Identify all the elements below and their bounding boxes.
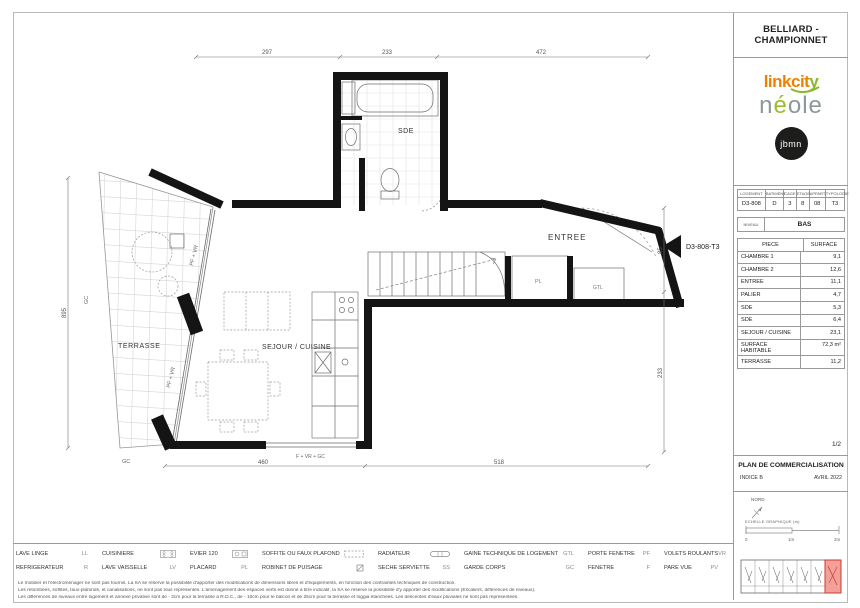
niveau-value: BAS	[765, 218, 844, 231]
legend-code: PV	[711, 565, 718, 571]
piece-name: CHAMBRE 2	[738, 264, 801, 276]
piece-name: CHAMBRE 1	[738, 252, 801, 264]
unit-col-etage: ETAGE	[796, 190, 809, 198]
disclaimer-line-3: Les différences de niveaux entre logemen…	[18, 595, 648, 602]
divider	[734, 455, 848, 456]
table-row: CHAMBRE 212,6	[738, 264, 844, 277]
unit-value-etage: 8	[796, 198, 809, 211]
unit-value-typologie: T3	[825, 198, 844, 211]
legend-code: R	[84, 565, 88, 571]
plan-sheet: { "header": { "project_title": "BELLIARD…	[0, 0, 860, 608]
neole-accent: é	[773, 92, 787, 119]
legend-item: RADIATEUR	[378, 547, 464, 561]
dim-right-1: 85	[658, 247, 664, 254]
legend-label: REFRIGERATEUR	[16, 565, 63, 571]
legend-label: SOFFITE OU FAUX PLAFOND	[262, 551, 340, 557]
piece-name: SEJOUR / CUISINE	[738, 327, 801, 339]
date: AVRIL 2022	[814, 475, 842, 481]
label-gc-left: GC	[84, 296, 90, 304]
legend-label: GAINE TECHNIQUE DE LOGEMENT	[464, 551, 558, 557]
dim-top-3: 472	[536, 50, 547, 56]
label-window-bottom: F + VR + GC	[296, 454, 325, 460]
label-gtl: GTL	[593, 285, 603, 291]
legend-item: FENETREF	[588, 561, 664, 575]
legend-label: EVIER 120	[190, 551, 218, 557]
tap-icon	[356, 564, 364, 572]
piece-name: ENTREE	[738, 277, 801, 289]
legend-label: FENETRE	[588, 565, 614, 571]
legend-label: LAVE LINGE	[16, 551, 48, 557]
room-label-sde: SDE	[398, 128, 414, 135]
legend-code: LL	[82, 551, 88, 557]
table-row: SDE6,4	[738, 315, 844, 328]
piece-surface: 12,6	[801, 264, 844, 276]
legend-label: RADIATEUR	[378, 551, 410, 557]
sink-icon	[232, 550, 248, 558]
bathroom-tiles	[341, 80, 444, 205]
table-row: SDE5,3	[738, 302, 844, 315]
divider	[13, 543, 733, 544]
table-row: PALIER4,7	[738, 289, 844, 302]
legend-code: PF	[643, 551, 650, 557]
terrace-tiles	[92, 166, 222, 452]
room-label-entree: ENTREE	[548, 233, 586, 242]
legend-code: F	[647, 565, 650, 571]
neole-logo: néole	[759, 94, 823, 118]
legend-item: PLACARDPL	[190, 561, 262, 575]
legend-item: LAVE LINGELL	[16, 547, 102, 561]
table-row: ENTREE11,1	[738, 277, 844, 290]
north-label: NORD	[751, 497, 765, 502]
piece-surface: 72,3 m²	[801, 340, 844, 356]
unit-value-batiment: D	[765, 198, 783, 211]
legend-label: PARE VUE	[664, 565, 692, 571]
jbmn-text: jbmn	[780, 139, 802, 149]
scale-label: ECHELLE GRAPHIQUE (m)	[745, 519, 800, 524]
scale-tick-1: 1m	[788, 537, 795, 542]
walls	[150, 72, 684, 449]
piece-name: TERRASSE	[738, 356, 801, 368]
disclaimer-text: Le mobilier et l'électroménager ne sont …	[18, 581, 648, 602]
unit-col-batiment: BATIMENT	[765, 190, 783, 198]
table-row: TERRASSE11,2	[738, 356, 844, 368]
disclaimer-line-1: Le mobilier et l'électroménager ne sont …	[18, 581, 648, 588]
linkcity-logo: linkcity	[764, 73, 819, 90]
dim-top-1: 297	[262, 50, 273, 56]
dim-left: 895	[62, 307, 68, 318]
legend-label: SECHE SERVIETTE	[378, 565, 430, 571]
surface-table-header: PIECE SURFACE	[738, 239, 844, 252]
unit-col-appart: APPART.	[809, 190, 825, 198]
legend-item: CUISINIERE	[102, 547, 190, 561]
unit-col-cage: CAGE	[784, 190, 797, 198]
piece-surface: 4,7	[801, 289, 844, 301]
room-label-sejour: SEJOUR / CUISINE	[262, 344, 331, 351]
legend-label: PORTE FENETRE	[588, 551, 635, 557]
legend-code: PL	[241, 565, 248, 571]
room-label-terrasse: TERRASSE	[118, 343, 161, 350]
unit-arrow-label: D3-808-T3	[686, 244, 720, 251]
page-number: 1/2	[832, 441, 841, 448]
legend-item: PARE VUEPV	[664, 561, 732, 575]
piece-surface: 23,1	[801, 327, 844, 339]
legend-label: PLACARD	[190, 565, 216, 571]
key-plan-thumbnail	[740, 555, 842, 599]
fixtures	[132, 80, 656, 438]
legend-code: SS	[443, 565, 450, 571]
scale-tick-0: 0	[745, 537, 748, 542]
piece-name: SDE	[738, 315, 801, 327]
legend-item: ROBINET DE PUISAGE	[262, 561, 378, 575]
logos-block: linkcity néole jbmn	[734, 57, 848, 186]
north-compass-icon	[749, 504, 765, 520]
unit-value-cage: 3	[784, 198, 797, 211]
legend-item: GARDE CORPSGC	[464, 561, 588, 575]
disclaimer-line-2: Les retombées, soffites, faux-plafonds, …	[18, 588, 648, 595]
legend-code: VR	[718, 551, 726, 557]
cooktop-icon	[160, 550, 176, 558]
linkcity-swoosh-icon	[790, 86, 820, 95]
piece-surface: 6,4	[801, 315, 844, 327]
niveau-row: NIVEAU BAS	[737, 217, 845, 232]
piece-name: PALIER	[738, 289, 801, 301]
legend-item: REFRIGERATEURR	[16, 561, 102, 575]
legend-item: LAVE VAISSELLELV	[102, 561, 190, 575]
legend-code: GTL	[563, 551, 574, 557]
table-row: SURFACE HABITABLE72,3 m²	[738, 340, 844, 357]
plan-subtitle-row: INDICE B AVRIL 2022	[740, 475, 842, 481]
surface-col-surface: SURFACE	[804, 239, 844, 251]
legend-label: VOLETS ROULANTS	[664, 551, 718, 557]
title-block-panel: BELLIARD - CHAMPIONNET linkcity néole jb…	[733, 13, 848, 600]
piece-surface: 5,3	[801, 302, 844, 314]
unit-table: LOGEMENT BATIMENT CAGE ETAGE APPART. TYP…	[737, 189, 845, 211]
dim-bottom-1: 460	[258, 460, 269, 466]
neole-text-rest: ole	[788, 92, 823, 119]
unit-info-tables: LOGEMENT BATIMENT CAGE ETAGE APPART. TYP…	[737, 189, 845, 369]
unit-value-logement: D3-808	[738, 198, 766, 211]
plan-title: PLAN DE COMMERCIALISATION	[734, 462, 848, 469]
surface-col-piece: PIECE	[738, 239, 804, 251]
unit-col-typologie: TYPOLOGIE	[825, 190, 844, 198]
label-bay-upper: PF + VR	[189, 245, 200, 267]
legend-item: EVIER 120	[190, 547, 262, 561]
label-placard: PL	[535, 279, 542, 285]
legend-item: VOLETS ROULANTSVR	[664, 547, 732, 561]
scale-tick-2: 2m	[834, 537, 841, 542]
legend-label: LAVE VAISSELLE	[102, 565, 147, 571]
unit-col-logement: LOGEMENT	[738, 190, 766, 198]
label-bay-lower: PF + VR	[166, 367, 177, 389]
dim-top-2: 233	[382, 50, 393, 56]
dim-bottom-2: 518	[494, 460, 505, 466]
dim-right-2: 233	[658, 367, 664, 378]
label-gc-bottom: GC	[122, 459, 130, 465]
jbmn-logo: jbmn	[775, 127, 808, 160]
piece-name: SDE	[738, 302, 801, 314]
legend-label: CUISINIERE	[102, 551, 134, 557]
legend-label: GARDE CORPS	[464, 565, 505, 571]
legend-item: PORTE FENETREPF	[588, 547, 664, 561]
symbols-legend: LAVE LINGELL CUISINIERE EVIER 120 SOFFIT…	[16, 547, 732, 575]
table-row: CHAMBRE 19,1	[738, 252, 844, 265]
legend-code: LV	[170, 565, 176, 571]
scale-bar: 0 1m 2m	[745, 525, 843, 543]
piece-name: SURFACE HABITABLE	[738, 340, 801, 356]
surface-table: PIECE SURFACE CHAMBRE 19,1 CHAMBRE 212,6…	[737, 238, 845, 369]
table-row: SEJOUR / CUISINE23,1	[738, 327, 844, 340]
indice: INDICE B	[740, 475, 763, 481]
legend-item: GAINE TECHNIQUE DE LOGEMENTGTL	[464, 547, 588, 561]
niveau-label: NIVEAU	[738, 218, 765, 231]
radiator-icon	[430, 550, 450, 558]
divider	[734, 491, 848, 492]
piece-surface: 11,2	[801, 356, 844, 368]
piece-surface: 11,1	[801, 277, 844, 289]
project-title: BELLIARD - CHAMPIONNET	[734, 13, 848, 58]
legend-item: SECHE SERVIETTESS	[378, 561, 464, 575]
piece-surface: 9,1	[801, 252, 844, 264]
soffit-icon	[344, 550, 364, 558]
floor-plan-drawing: 297 233 472 895 85 233 460 518 SDE ENTRE…	[13, 13, 733, 545]
legend-item: SOFFITE OU FAUX PLAFOND	[262, 547, 378, 561]
legend-label: ROBINET DE PUISAGE	[262, 565, 323, 571]
neole-text: n	[759, 92, 773, 119]
legend-code: GC	[566, 565, 574, 571]
unit-value-appart: 08	[809, 198, 825, 211]
